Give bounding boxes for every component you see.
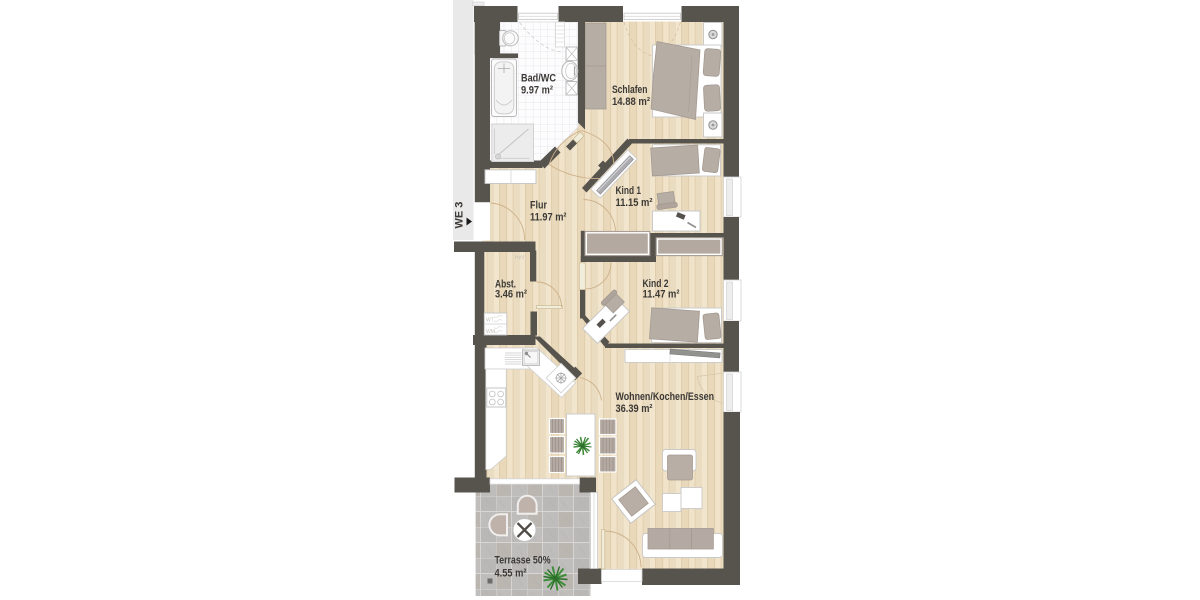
svg-text:9.97 m²: 9.97 m² bbox=[521, 85, 553, 97]
svg-text:Flur: Flur bbox=[530, 200, 548, 212]
svg-text:Bad/WC: Bad/WC bbox=[521, 73, 556, 85]
svg-text:14.88 m²: 14.88 m² bbox=[612, 96, 650, 108]
svg-text:11.15 m²: 11.15 m² bbox=[616, 197, 653, 209]
svg-text:WE 3: WE 3 bbox=[454, 202, 466, 229]
svg-text:36.39 m²: 36.39 m² bbox=[616, 403, 653, 415]
svg-text:11.47 m²: 11.47 m² bbox=[643, 289, 680, 301]
svg-text:Kind 1: Kind 1 bbox=[616, 185, 642, 197]
svg-text:Wohnen/Kochen/Essen: Wohnen/Kochen/Essen bbox=[616, 391, 715, 403]
svg-text:3.46 m²: 3.46 m² bbox=[495, 289, 527, 301]
svg-text:Terrasse 50%: Terrasse 50% bbox=[495, 555, 551, 567]
svg-text:HzV: HzV bbox=[515, 255, 525, 261]
svg-text:Schlafen: Schlafen bbox=[612, 84, 648, 96]
svg-text:4.55 m²: 4.55 m² bbox=[495, 568, 527, 580]
svg-text:11.97 m²: 11.97 m² bbox=[530, 212, 567, 224]
svg-text:WT: WT bbox=[486, 318, 494, 324]
svg-text:WM: WM bbox=[486, 329, 495, 335]
